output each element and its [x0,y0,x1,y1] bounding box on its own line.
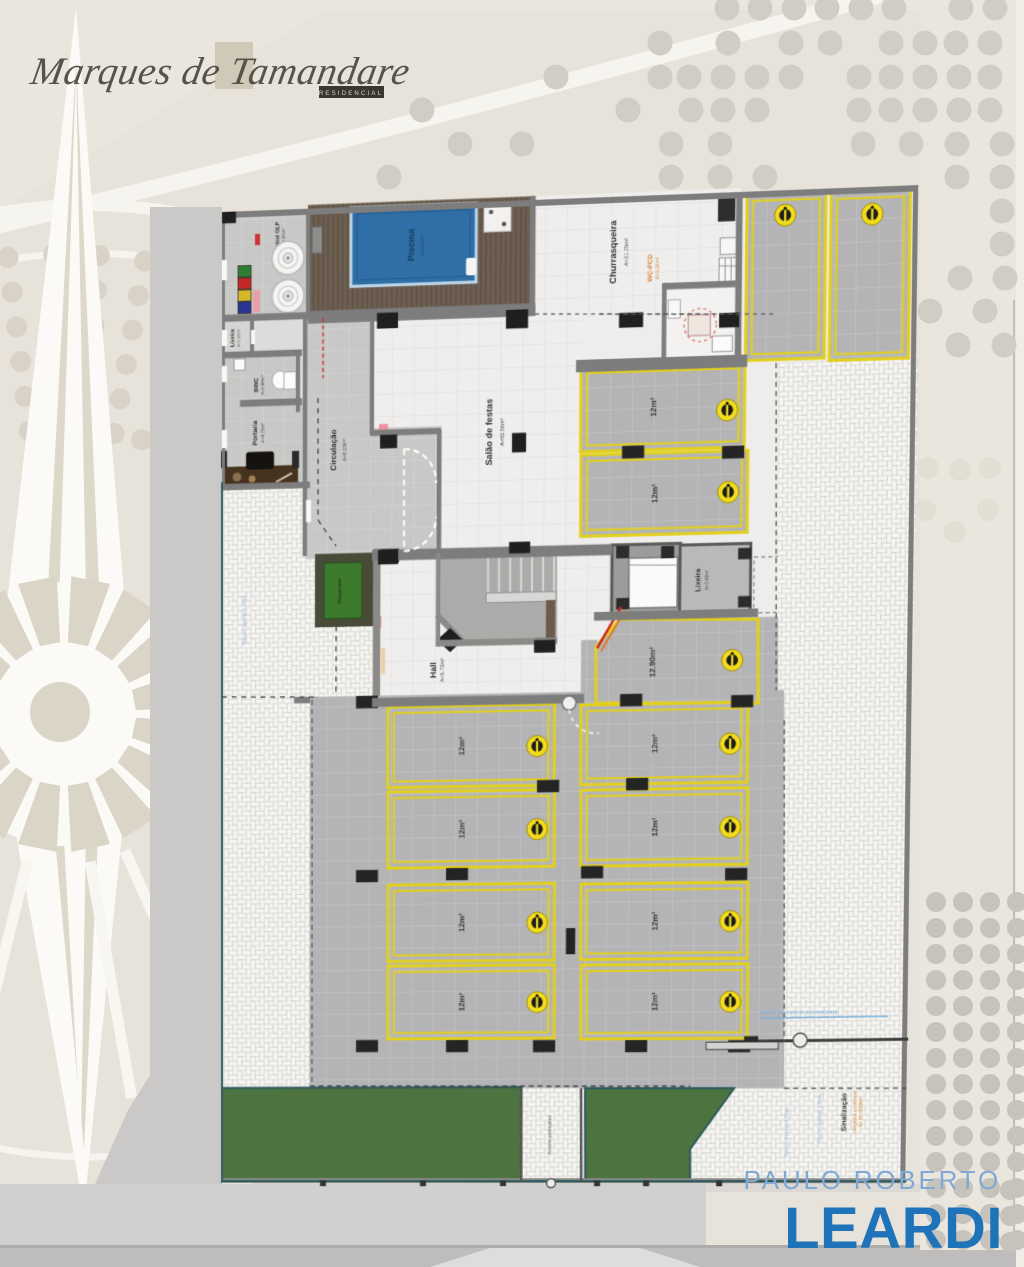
svg-text:PAULO ROBERTO: PAULO ROBERTO [744,1165,1001,1195]
svg-text:RESIDENCIAL: RESIDENCIAL [319,91,383,97]
svg-text:LEARDI: LEARDI [784,1196,1003,1261]
